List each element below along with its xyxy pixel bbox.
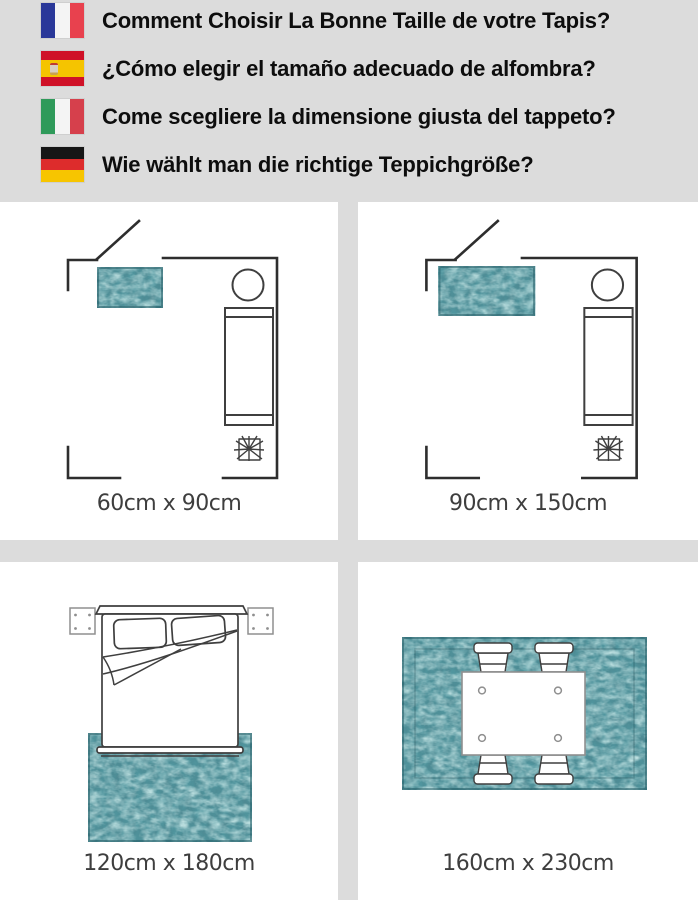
headboard — [96, 606, 247, 614]
floorplan-bedroom — [0, 562, 338, 900]
potted-plant-icon — [234, 436, 264, 461]
panel-living-room-small: 60cm x 90cm — [0, 202, 338, 540]
title-french: Comment Choisir La Bonne Taille de votre… — [102, 8, 610, 34]
rug — [97, 267, 163, 308]
nightstand-right — [248, 608, 273, 634]
chair-top-right — [535, 643, 573, 672]
rug — [438, 266, 535, 316]
rug-size-label: 120cm x 180cm — [0, 851, 338, 876]
diagram-grid: 60cm x 90cm — [0, 202, 698, 900]
panel-bedroom: 120cm x 180cm — [0, 562, 338, 900]
rug-size-label: 90cm x 150cm — [358, 491, 698, 516]
sofa — [225, 308, 273, 425]
spain-coat-of-arms — [50, 63, 58, 75]
chair-bottom-right — [535, 755, 573, 784]
lang-row-italian: Come scegliere la dimensione giusta del … — [41, 99, 698, 134]
potted-plant-icon — [593, 436, 623, 461]
chair-top-left — [474, 643, 512, 672]
floorplan-living-room-small — [0, 202, 338, 540]
germany-flag-icon — [41, 147, 84, 182]
door-icon — [97, 221, 139, 259]
sofa — [584, 308, 632, 425]
title-german: Wie wählt man die richtige Teppichgröße? — [102, 152, 533, 178]
lang-row-german: Wie wählt man die richtige Teppichgröße? — [41, 147, 698, 182]
bed — [96, 606, 247, 756]
nightstand-left — [70, 608, 95, 634]
france-flag-icon — [41, 3, 84, 38]
door-icon — [456, 221, 498, 259]
spain-flag-icon — [41, 51, 84, 86]
title-italian: Come scegliere la dimensione giusta del … — [102, 104, 616, 130]
lang-row-spanish: ¿Cómo elegir el tamaño adecuado de alfom… — [41, 51, 698, 86]
pillow-right — [171, 615, 226, 646]
floorplan-dining-room — [358, 562, 698, 900]
side-table — [592, 270, 623, 301]
floorplan-living-room-medium — [358, 202, 698, 540]
rug-size-label: 60cm x 90cm — [0, 491, 338, 516]
chair-bottom-left — [474, 755, 512, 784]
footboard — [97, 747, 243, 753]
lang-row-french: Comment Choisir La Bonne Taille de votre… — [41, 3, 698, 38]
pillow-left — [114, 618, 167, 649]
side-table — [233, 270, 264, 301]
header: Comment Choisir La Bonne Taille de votre… — [0, 0, 698, 202]
panel-dining-room: 160cm x 230cm — [358, 562, 698, 900]
rug-size-guide: Comment Choisir La Bonne Taille de votre… — [0, 0, 698, 900]
panel-living-room-medium: 90cm x 150cm — [358, 202, 698, 540]
italy-flag-icon — [41, 99, 84, 134]
title-spanish: ¿Cómo elegir el tamaño adecuado de alfom… — [102, 56, 596, 82]
dining-table — [462, 672, 585, 755]
rug-size-label: 160cm x 230cm — [358, 851, 698, 876]
